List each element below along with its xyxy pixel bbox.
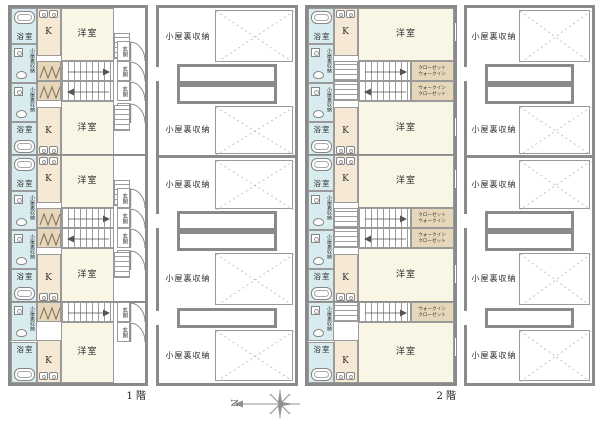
window-gap xyxy=(464,66,467,82)
stairs-direction-arrow xyxy=(62,229,115,249)
loft-ladder-icon xyxy=(37,81,61,101)
window-gap xyxy=(454,338,457,356)
bathtub-icon xyxy=(311,287,332,300)
room-label: K xyxy=(342,175,350,184)
void-cross-lines xyxy=(520,161,591,210)
room-label: クローゼット xyxy=(419,91,447,97)
void-cross-lines xyxy=(216,161,294,210)
western-room: 洋室 xyxy=(61,101,114,155)
compass-n-label: N xyxy=(230,399,238,407)
void-cross-lines xyxy=(216,107,294,155)
entrance-door-arc-icon xyxy=(130,81,145,101)
bathtub-icon xyxy=(311,11,332,24)
room-label: ウォークイン xyxy=(419,85,447,91)
burner-icon xyxy=(52,149,56,153)
room-label: 浴室 xyxy=(12,126,38,134)
bathroom: 浴室 xyxy=(11,122,37,155)
room-label: クローゼット xyxy=(419,65,447,71)
void-cross-lines xyxy=(520,331,591,382)
ladder-zigzag-icon xyxy=(39,305,61,321)
party-wall xyxy=(159,155,295,158)
toilet-icon xyxy=(16,71,27,79)
staircase xyxy=(358,81,411,101)
room-label: 小屋裏収納 xyxy=(326,234,331,259)
attic-storage-room: 小屋裏収納 xyxy=(161,160,215,210)
room-label: 小屋裏収納 xyxy=(29,234,34,259)
room-label: 玄関 xyxy=(121,46,127,57)
walk-in-closet: ウォークインクローゼット xyxy=(411,81,454,101)
void-open-area xyxy=(519,330,590,381)
room-label: 小屋裏収納 xyxy=(472,181,517,189)
floor-2-plan: 浴室K洋室小屋裏収納小屋裏収納クローゼットウォークインウォークインクローゼット洋… xyxy=(305,5,457,386)
room-label: ウォークイン xyxy=(419,232,447,238)
burner-icon xyxy=(349,375,353,379)
ladder-zigzag-icon xyxy=(39,64,61,80)
stove-icon xyxy=(336,157,345,165)
loft-ladder-icon xyxy=(37,61,61,81)
bathroom: 浴室 xyxy=(11,342,37,383)
bathtub-inner xyxy=(17,14,32,21)
attic-stair-steps xyxy=(334,228,358,248)
attic-storage-room: 小屋裏収納 xyxy=(469,253,519,305)
room-label: クローゼット xyxy=(419,212,447,218)
bathroom: 浴室 xyxy=(11,269,37,302)
attic-over-floor-2-plan: 小屋裏収納小屋裏収納小屋裏収納小屋裏収納小屋裏収納 xyxy=(464,5,595,386)
bathtub-icon xyxy=(14,158,35,171)
toilet-icon xyxy=(16,329,27,337)
burner-icon xyxy=(42,160,46,164)
burner-icon xyxy=(339,13,343,17)
burner-icon xyxy=(42,375,46,379)
toilet-icon xyxy=(313,257,324,265)
void-open-area xyxy=(215,330,293,381)
attic-storage-room: 小屋裏収納 xyxy=(469,160,519,210)
stove-icon xyxy=(336,146,345,154)
window-gap xyxy=(454,265,457,283)
utility-room: 小屋裏収納 xyxy=(308,230,334,269)
stove-icon xyxy=(39,146,48,154)
attic-corridor xyxy=(177,308,277,328)
toilet-icon xyxy=(16,257,27,265)
attic-corridor xyxy=(485,84,574,104)
sink-icon xyxy=(346,157,355,165)
entrance-door-arc-icon xyxy=(130,322,145,342)
staircase xyxy=(61,61,114,81)
western-room: 洋室 xyxy=(61,322,114,383)
attic-stair-steps xyxy=(334,81,358,101)
room-label: 小屋裏収納 xyxy=(472,275,517,283)
room-label: K xyxy=(45,28,53,37)
staircase xyxy=(358,61,411,81)
room-label: 洋室 xyxy=(77,177,97,186)
void-cross-lines xyxy=(216,254,294,306)
room-label: 小屋裏収納 xyxy=(166,352,211,360)
stove-sink-icons xyxy=(39,157,59,165)
void-open-area xyxy=(519,160,590,209)
sink-icon xyxy=(346,10,355,18)
attic-storage-room: 小屋裏収納 xyxy=(161,253,215,305)
entry-steps xyxy=(114,105,130,131)
room-label: 浴室 xyxy=(309,273,335,281)
stairs-direction-arrow xyxy=(62,82,115,102)
room-label: 小屋裏収納 xyxy=(166,33,211,41)
burner-icon xyxy=(52,375,56,379)
bathtub-inner xyxy=(314,143,329,150)
loft-ladder-icon xyxy=(37,302,61,322)
burner-icon xyxy=(349,149,353,153)
washer-drum-icon xyxy=(17,309,22,314)
burner-icon xyxy=(339,160,343,164)
utility-room: 小屋裏収納 xyxy=(11,302,37,341)
burner-icon xyxy=(42,296,46,300)
stove-icon xyxy=(336,293,345,301)
burner-icon xyxy=(52,160,56,164)
bathtub-inner xyxy=(17,143,32,150)
toilet-icon xyxy=(313,329,324,337)
attic-corridor xyxy=(485,211,574,231)
bathroom: 浴室 xyxy=(11,155,37,191)
bathroom: 浴室 xyxy=(308,269,334,302)
room-label: ウォークイン xyxy=(419,71,447,77)
void-cross-lines xyxy=(216,11,294,63)
bathtub-icon xyxy=(311,368,332,381)
bathtub-icon xyxy=(14,140,35,153)
entrance-door-arc-icon xyxy=(130,250,145,270)
attic-storage-room: 小屋裏収納 xyxy=(469,330,519,381)
room-label: 小屋裏収納 xyxy=(472,126,517,134)
stairs-direction-arrow xyxy=(359,209,412,229)
western-room: 洋室 xyxy=(61,155,114,208)
room-label: 玄関 xyxy=(121,307,127,318)
bathtub-inner xyxy=(17,371,32,378)
stove-sink-icons xyxy=(39,146,59,154)
washer-drum-icon xyxy=(314,237,319,242)
stove-icon xyxy=(39,157,48,165)
room-label: 浴室 xyxy=(309,126,335,134)
room-label: 小屋裏収納 xyxy=(326,306,331,331)
room-label: K xyxy=(342,274,350,283)
room-label: K xyxy=(342,127,350,136)
void-cross-lines xyxy=(520,11,591,63)
room-label: 洋室 xyxy=(396,30,416,39)
washer-icon xyxy=(311,195,320,204)
bathtub-icon xyxy=(14,287,35,300)
room-label: K xyxy=(45,127,53,136)
window-gap xyxy=(156,213,159,229)
room-label: 小屋裏収納 xyxy=(166,126,211,134)
entrance-hall: 玄関 xyxy=(117,41,130,61)
sink-icon xyxy=(49,293,58,301)
void-cross-lines xyxy=(216,331,294,382)
washer-drum-icon xyxy=(17,198,22,203)
void-open-area xyxy=(519,10,590,62)
entrance-door-arc-icon xyxy=(130,61,145,81)
room-label: 玄関 xyxy=(121,86,127,97)
room-label: K xyxy=(45,357,53,366)
staircase xyxy=(61,81,114,101)
utility-room: 小屋裏収納 xyxy=(11,44,37,83)
utility-room: 小屋裏収納 xyxy=(308,302,334,341)
staircase xyxy=(358,208,411,228)
burner-icon xyxy=(339,375,343,379)
bathroom: 浴室 xyxy=(308,342,334,383)
stove-sink-icons xyxy=(39,293,59,301)
room-label: 洋室 xyxy=(77,271,97,280)
attic-corridor xyxy=(177,64,277,84)
walk-in-closet: クローゼットウォークイン xyxy=(411,208,454,228)
attic-corridor xyxy=(485,308,574,328)
room-label: クローゼット xyxy=(419,238,447,244)
sink-icon xyxy=(49,157,58,165)
bathtub-inner xyxy=(17,161,32,168)
burner-icon xyxy=(349,13,353,17)
stove-icon xyxy=(39,372,48,380)
western-room: 洋室 xyxy=(358,322,454,383)
attic-stair-steps xyxy=(334,208,358,228)
entry-steps xyxy=(114,252,130,278)
burner-icon xyxy=(52,296,56,300)
entrance-hall: 玄関 xyxy=(117,208,130,228)
stairs-direction-arrow xyxy=(62,303,115,323)
loft-ladder-icon xyxy=(37,228,61,248)
bathtub-icon xyxy=(14,11,35,24)
walk-in-closet: クローゼットウォークイン xyxy=(411,61,454,81)
void-open-area xyxy=(215,253,293,305)
attic-storage-room: 小屋裏収納 xyxy=(161,330,215,381)
stairs-direction-arrow xyxy=(359,82,412,102)
stove-icon xyxy=(39,293,48,301)
washer-icon xyxy=(14,234,23,243)
western-room: 洋室 xyxy=(358,155,454,208)
room-label: 小屋裏収納 xyxy=(29,48,34,73)
window-gap xyxy=(156,66,159,82)
washer-drum-icon xyxy=(17,51,22,56)
ladder-zigzag-icon xyxy=(39,211,61,227)
washer-icon xyxy=(311,48,320,57)
entrance-hall: 玄関 xyxy=(117,61,130,81)
attic-storage-room: 小屋裏収納 xyxy=(161,10,215,64)
room-label: 洋室 xyxy=(77,30,97,39)
floor-1-plan: 浴室K洋室小屋裏収納小屋裏収納玄関玄関玄関玄関洋室K浴室浴室K洋室小屋裏収納小屋… xyxy=(8,5,148,386)
window-gap xyxy=(454,23,457,41)
entrance-hall: 玄関 xyxy=(117,81,130,101)
floor-plan-canvas: 1 階 2 階 N 浴室K洋室小屋裏収納小屋裏収納玄関玄関玄関玄関洋室K浴室浴室… xyxy=(0,0,600,424)
room-label: 洋室 xyxy=(396,177,416,186)
window-gap xyxy=(464,310,467,326)
attic-stair-steps xyxy=(334,302,358,322)
room-label: ウォークイン xyxy=(419,218,447,224)
burner-icon xyxy=(42,149,46,153)
room-label: 小屋裏収納 xyxy=(29,306,34,331)
void-open-area xyxy=(519,253,590,305)
washer-icon xyxy=(14,195,23,204)
utility-room: 小屋裏収納 xyxy=(308,83,334,122)
room-label: 洋室 xyxy=(396,124,416,133)
stove-sink-icons xyxy=(336,372,356,380)
western-room: 洋室 xyxy=(358,101,454,155)
burner-icon xyxy=(339,296,343,300)
washer-icon xyxy=(311,87,320,96)
staircase xyxy=(358,228,411,248)
stove-icon xyxy=(336,372,345,380)
washer-drum-icon xyxy=(17,237,22,242)
stairs-direction-arrow xyxy=(359,303,412,323)
walk-in-closet: ウォークインクローゼット xyxy=(411,228,454,248)
stove-icon xyxy=(39,10,48,18)
stove-sink-icons xyxy=(336,146,356,154)
toilet-icon xyxy=(313,218,324,226)
room-label: 小屋裏収納 xyxy=(326,48,331,73)
washer-drum-icon xyxy=(314,90,319,95)
room-label: K xyxy=(45,274,53,283)
attic-stair-steps xyxy=(334,61,358,81)
sink-icon xyxy=(346,372,355,380)
entrance-hall: 玄関 xyxy=(117,322,130,342)
room-label: 小屋裏収納 xyxy=(472,33,517,41)
stairs-direction-arrow xyxy=(359,229,412,249)
window-gap xyxy=(156,310,159,326)
washer-icon xyxy=(311,234,320,243)
bathroom: 浴室 xyxy=(308,8,334,44)
stove-sink-icons xyxy=(336,293,356,301)
ladder-zigzag-icon xyxy=(39,231,61,247)
void-open-area xyxy=(215,106,293,154)
window-gap xyxy=(454,170,457,188)
room-label: 洋室 xyxy=(77,348,97,357)
washer-icon xyxy=(14,306,23,315)
room-label: ウォークイン xyxy=(419,306,447,312)
attic-corridor xyxy=(485,64,574,84)
bathtub-inner xyxy=(17,290,32,297)
toilet-icon xyxy=(313,71,324,79)
room-label: 玄関 xyxy=(121,327,127,338)
ladder-zigzag-icon xyxy=(39,84,61,100)
stove-sink-icons xyxy=(336,10,356,18)
attic-corridor xyxy=(177,84,277,104)
room-label: 小屋裏収納 xyxy=(326,195,331,220)
stairs-direction-arrow xyxy=(62,209,115,229)
utility-room: 小屋裏収納 xyxy=(308,44,334,83)
party-wall xyxy=(467,155,592,158)
washer-drum-icon xyxy=(314,198,319,203)
bathtub-inner xyxy=(314,161,329,168)
stove-sink-icons xyxy=(336,157,356,165)
attic-corridor xyxy=(485,231,574,251)
window-gap xyxy=(464,213,467,229)
western-room: 洋室 xyxy=(61,8,114,61)
bathtub-icon xyxy=(311,158,332,171)
western-room: 洋室 xyxy=(358,248,454,302)
room-label: 玄関 xyxy=(121,213,127,224)
toilet-icon xyxy=(313,110,324,118)
room-label: 玄関 xyxy=(121,233,127,244)
entrance-hall: 玄関 xyxy=(117,188,130,208)
washer-icon xyxy=(14,87,23,96)
compass-north-icon: N xyxy=(230,385,308,423)
stove-sink-icons xyxy=(39,372,59,380)
loft-ladder-icon xyxy=(37,208,61,228)
void-open-area xyxy=(519,106,590,154)
washer-drum-icon xyxy=(314,309,319,314)
western-room: 洋室 xyxy=(61,248,114,302)
entrance-hall: 玄関 xyxy=(117,302,130,322)
room-label: 小屋裏収納 xyxy=(326,87,331,112)
bathroom: 浴室 xyxy=(308,122,334,155)
sink-icon xyxy=(346,293,355,301)
burner-icon xyxy=(339,149,343,153)
room-label: 浴室 xyxy=(309,346,335,354)
room-label: 玄関 xyxy=(121,66,127,77)
burner-icon xyxy=(42,13,46,17)
washer-icon xyxy=(311,306,320,315)
sink-icon xyxy=(49,146,58,154)
burner-icon xyxy=(52,13,56,17)
washer-drum-icon xyxy=(314,51,319,56)
bathtub-icon xyxy=(14,368,35,381)
attic-storage-room: 小屋裏収納 xyxy=(469,10,519,64)
utility-room: 小屋裏収納 xyxy=(11,230,37,269)
floor-2-label: 2 階 xyxy=(396,387,456,402)
stove-icon xyxy=(336,10,345,18)
staircase xyxy=(61,208,114,228)
room-label: 浴室 xyxy=(12,180,38,188)
burner-icon xyxy=(349,296,353,300)
window-gap xyxy=(454,118,457,136)
floor-1-label: 1 階 xyxy=(96,387,146,402)
void-open-area xyxy=(215,10,293,62)
bathtub-inner xyxy=(314,371,329,378)
void-cross-lines xyxy=(520,107,591,155)
staircase xyxy=(61,302,114,322)
entrance-hall: 玄関 xyxy=(117,228,130,248)
sink-icon xyxy=(49,10,58,18)
room-label: 小屋裏収納 xyxy=(472,352,517,360)
staircase xyxy=(358,302,411,322)
room-label: 浴室 xyxy=(12,33,38,41)
room-label: 小屋裏収納 xyxy=(166,181,211,189)
sink-icon xyxy=(346,146,355,154)
washer-icon xyxy=(14,48,23,57)
stairs-direction-arrow xyxy=(62,62,115,82)
sink-icon xyxy=(49,372,58,380)
void-cross-lines xyxy=(520,254,591,306)
attic-over-floor-1-plan: 小屋裏収納小屋裏収納小屋裏収納小屋裏収納小屋裏収納 xyxy=(156,5,298,386)
room-label: クローゼット xyxy=(419,312,447,318)
room-label: 小屋裏収納 xyxy=(166,275,211,283)
room-label: K xyxy=(342,357,350,366)
entrance-door-arc-icon xyxy=(130,302,145,322)
bathtub-inner xyxy=(314,290,329,297)
room-label: 浴室 xyxy=(309,33,335,41)
entrance-door-arc-icon xyxy=(130,208,145,228)
room-label: 小屋裏収納 xyxy=(29,195,34,220)
toilet-icon xyxy=(16,110,27,118)
toilet-icon xyxy=(16,218,27,226)
utility-room: 小屋裏収納 xyxy=(11,191,37,230)
western-room: 洋室 xyxy=(358,8,454,61)
room-label: K xyxy=(342,28,350,37)
bathtub-inner xyxy=(314,14,329,21)
utility-room: 小屋裏収納 xyxy=(308,191,334,230)
washer-drum-icon xyxy=(17,90,22,95)
attic-corridor xyxy=(177,211,277,231)
entrance-door-arc-icon xyxy=(130,188,145,208)
room-label: 浴室 xyxy=(12,346,38,354)
utility-room: 小屋裏収納 xyxy=(11,83,37,122)
room-label: K xyxy=(45,175,53,184)
void-open-area xyxy=(215,160,293,209)
bathroom: 浴室 xyxy=(11,8,37,44)
